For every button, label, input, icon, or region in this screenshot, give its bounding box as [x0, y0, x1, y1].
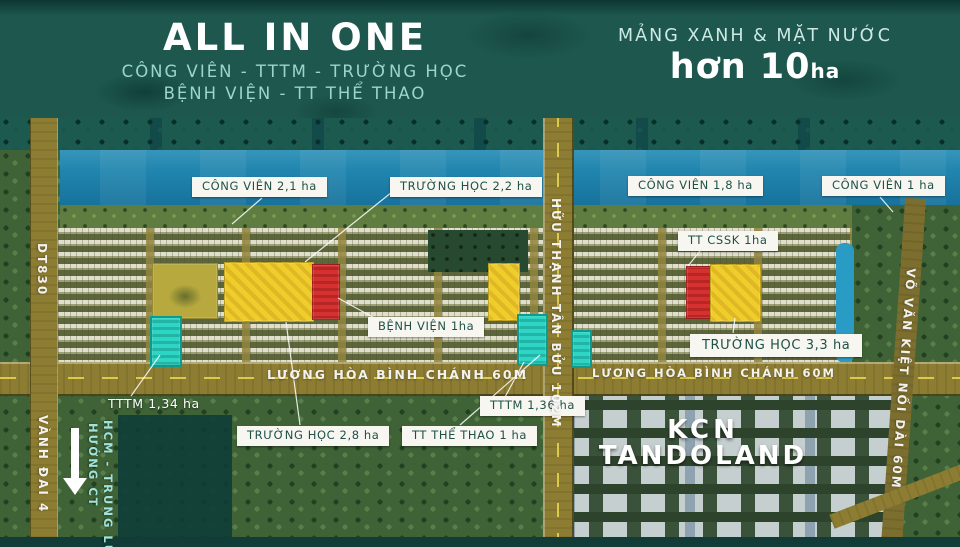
- kcn-title-line2: TANDOLAND: [573, 443, 833, 470]
- greenery-title-block: MẢNG XANH & MẶT NƯỚC hơn 10ha: [590, 26, 920, 85]
- road-label-huu-thanh: HỮU THẠNH TÂN BỬU 102M: [549, 198, 563, 393]
- label-cong-vien-1: CÔNG VIÊN 1 ha: [822, 176, 945, 196]
- plot-tt-the-thao: [571, 330, 592, 368]
- masterplan-map: ALL IN ONE CÔNG VIÊN - TTTM - TRƯỜNG HỌC…: [0, 0, 960, 547]
- plot-benh-vien: [312, 264, 340, 320]
- plot-truong-hoc-33: [710, 264, 761, 322]
- road-label-luong-hoa-right: LƯƠNG HÒA BÌNH CHÁNH 60M: [592, 366, 812, 380]
- project-subtitle-1: CÔNG VIÊN - TTTM - TRƯỜNG HỌC: [110, 62, 480, 81]
- greenery-headline: hơn 10ha: [590, 50, 920, 85]
- label-benh-vien: BỆNH VIỆN 1ha: [368, 317, 484, 337]
- dark-teal-overlay: [118, 415, 232, 547]
- road-label-dt830: DT830: [35, 243, 49, 335]
- project-title-block: ALL IN ONE CÔNG VIÊN - TTTM - TRƯỜNG HỌC…: [110, 18, 480, 103]
- label-cong-vien-21: CÔNG VIÊN 2,1 ha: [192, 177, 327, 197]
- plot-truong-hoc-22: [488, 263, 520, 321]
- plot-tt-cssk: [686, 266, 712, 319]
- label-tt-cssk: TT CSSK 1ha: [678, 231, 778, 251]
- label-truong-hoc-28: TRƯỜNG HỌC 2,8 ha: [237, 426, 389, 446]
- road-label-vanh-dai-4: VÀNH ĐAI 4: [36, 415, 50, 537]
- road-label-luong-hoa-left: LƯƠNG HÒA BÌNH CHÁNH 60M: [245, 367, 550, 382]
- project-title: ALL IN ONE: [110, 18, 480, 59]
- label-truong-hoc-33: TRƯỜNG HỌC 3,3 ha: [690, 334, 862, 357]
- plot-truong-hoc-28: [224, 262, 314, 322]
- label-tt-the-thao: TT THỂ THAO 1 ha: [402, 426, 537, 446]
- riverbank-trees: [0, 116, 960, 154]
- project-subtitle-2: BỆNH VIỆN - TT THỂ THAO: [110, 84, 480, 103]
- label-tttm-134: TTTM 1,34 ha: [108, 396, 200, 411]
- label-truong-hoc-22: TRƯỜNG HỌC 2,2 ha: [390, 177, 542, 197]
- direction-line1: HƯỚNG CT: [86, 423, 100, 518]
- plot-cyan-left: [150, 316, 182, 367]
- greenery-subtitle: MẢNG XANH & MẶT NƯỚC: [590, 26, 920, 46]
- greenery-headline-number: hơn 10: [670, 47, 811, 87]
- kcn-title: KCN TANDOLAND: [573, 417, 833, 470]
- direction-arrow-icon: [63, 428, 87, 502]
- label-cong-vien-18: CÔNG VIÊN 1,8 ha: [628, 176, 763, 196]
- direction-line2: HCM - TRUNG LƯƠNG: [101, 420, 115, 547]
- greenery-headline-unit: ha: [811, 59, 841, 83]
- bottom-border-strip: [0, 537, 960, 547]
- plot-tttm-136: [517, 314, 548, 366]
- plot-tttm-134: [152, 263, 218, 319]
- label-tttm-136: TTTM 1,36 ha: [480, 396, 585, 416]
- kcn-title-line1: KCN: [573, 417, 833, 443]
